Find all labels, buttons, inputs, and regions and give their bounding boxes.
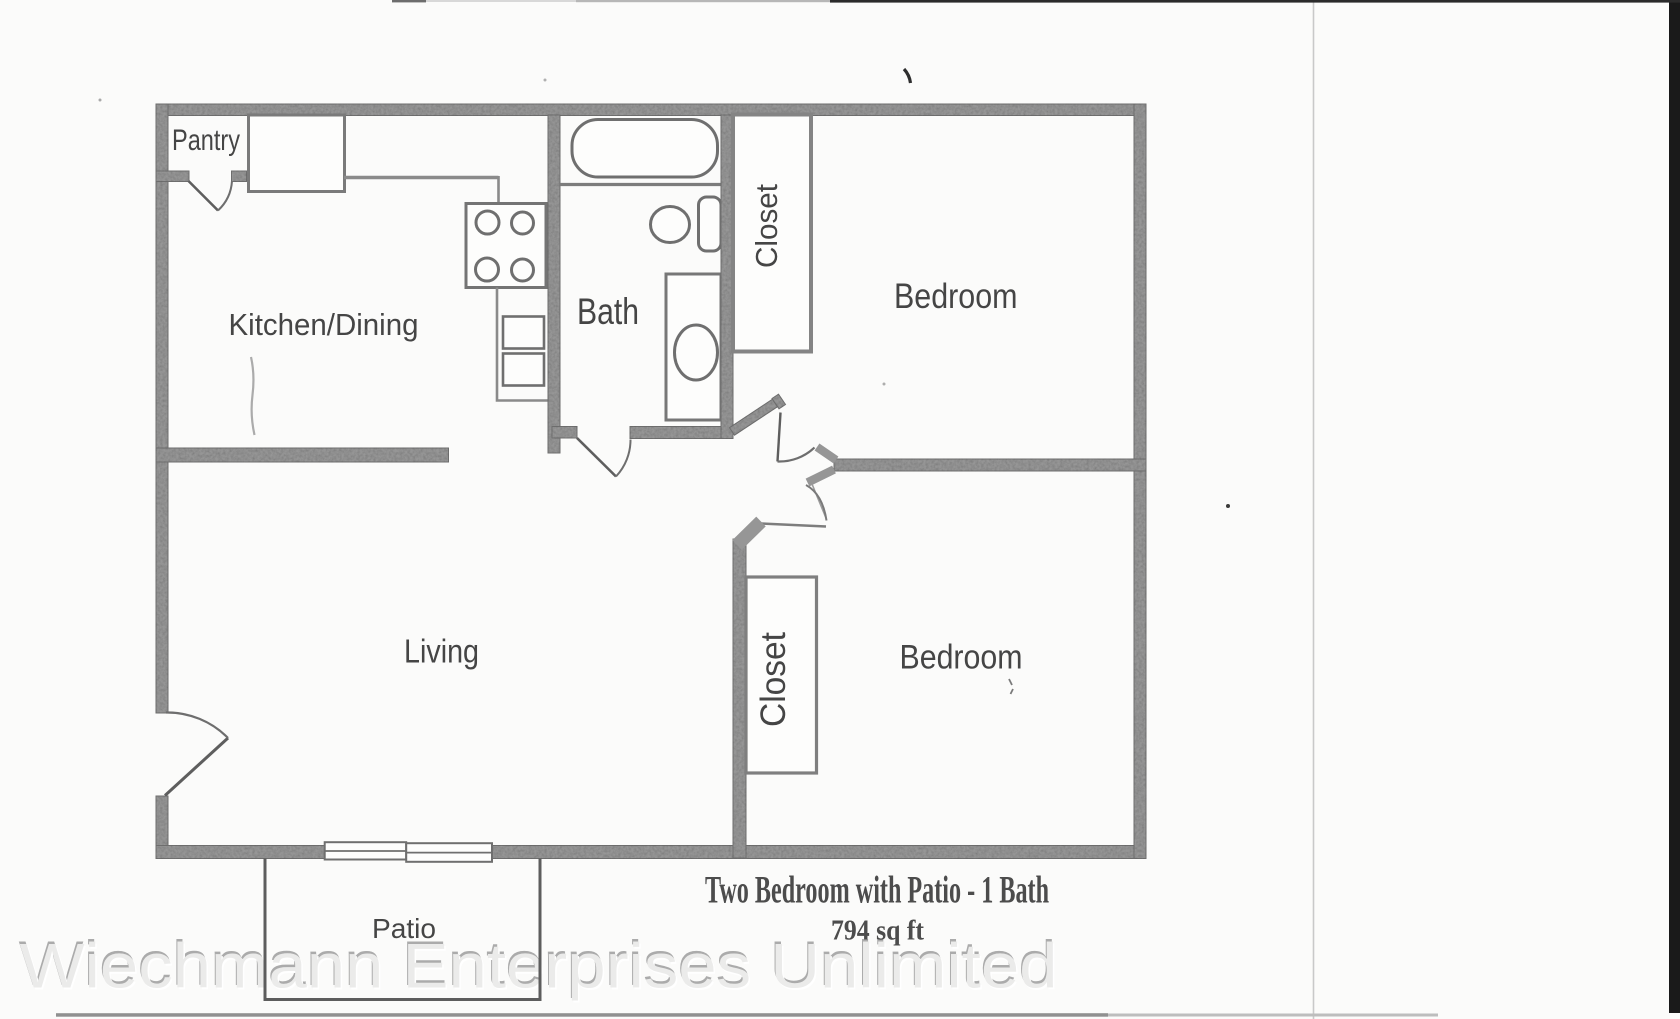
svg-text:Two Bedroom with Patio - 1 Bat: Two Bedroom with Patio - 1 Bath bbox=[705, 869, 1049, 912]
svg-text:Bedroom: Bedroom bbox=[894, 277, 1018, 316]
svg-text:Closet: Closet bbox=[754, 632, 793, 727]
svg-text:Kitchen/Dining: Kitchen/Dining bbox=[229, 307, 419, 342]
svg-text:Bath: Bath bbox=[577, 291, 639, 332]
svg-text:Patio: Patio bbox=[372, 913, 436, 944]
svg-text:794 sq ft: 794 sq ft bbox=[831, 915, 924, 947]
svg-text:Bedroom: Bedroom bbox=[900, 639, 1023, 677]
svg-text:Closet: Closet bbox=[749, 184, 784, 268]
svg-text:Pantry: Pantry bbox=[172, 124, 240, 157]
svg-text:Living: Living bbox=[404, 633, 479, 670]
